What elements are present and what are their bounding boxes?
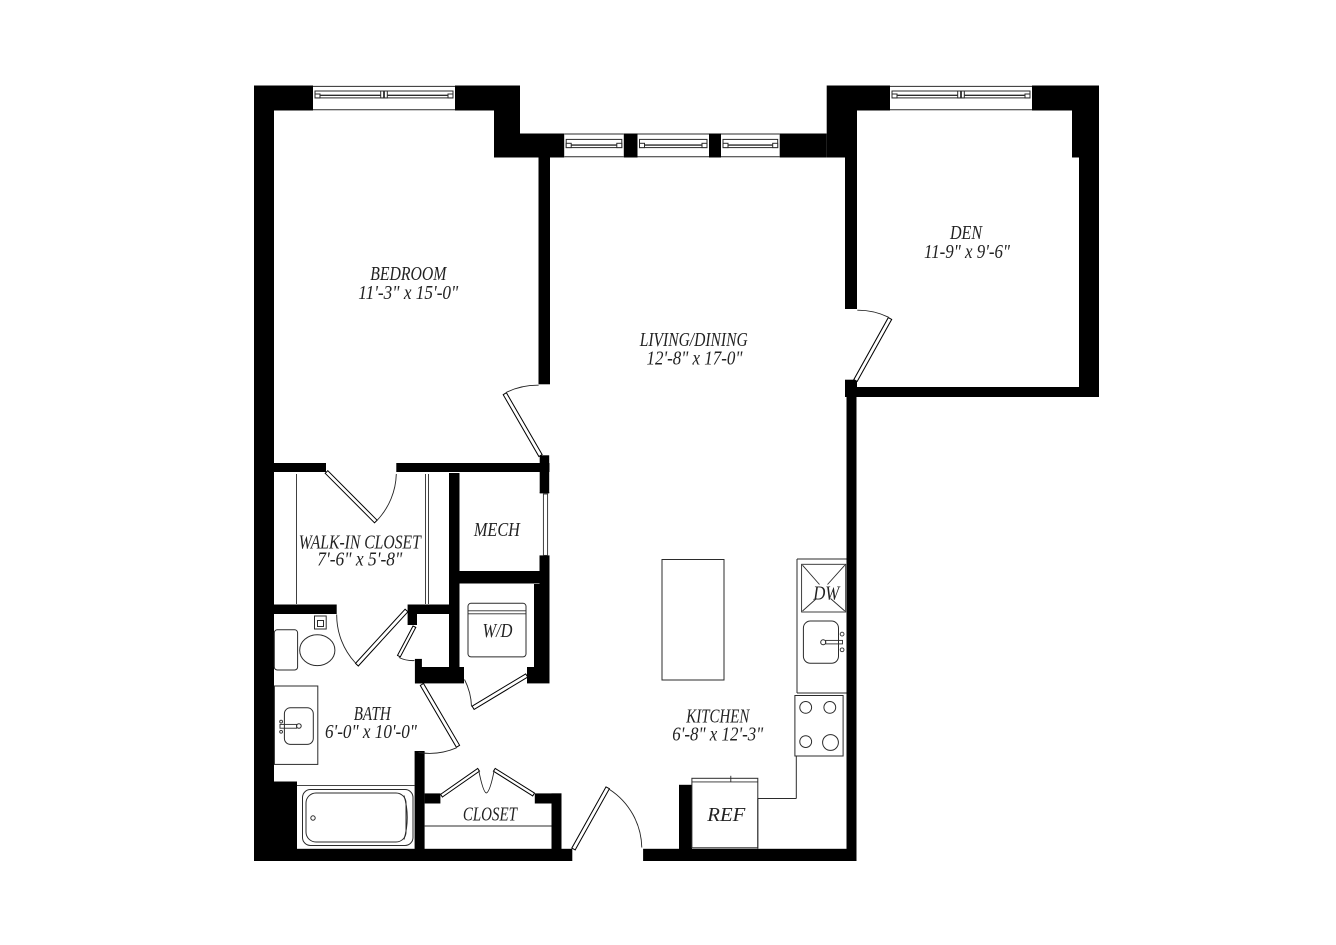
svg-text:6'-8" x 12'-3": 6'-8" x 12'-3" [672,724,763,746]
svg-text:12'-8" x 17-0": 12'-8" x 17-0" [647,348,744,370]
svg-text:11-9" x 9'-6": 11-9" x 9'-6" [924,241,1010,263]
svg-text:DW: DW [812,582,841,604]
svg-text:CLOSET: CLOSET [463,803,518,825]
svg-text:6'-0" x 10'-0": 6'-0" x 10'-0" [325,721,418,743]
svg-text:7'-6" x 5'-8": 7'-6" x 5'-8" [317,549,403,571]
svg-text:REF: REF [706,804,746,826]
svg-text:W/D: W/D [483,620,513,642]
svg-text:MECH: MECH [473,519,521,541]
svg-text:11'-3" x 15'-0": 11'-3" x 15'-0" [358,282,459,304]
